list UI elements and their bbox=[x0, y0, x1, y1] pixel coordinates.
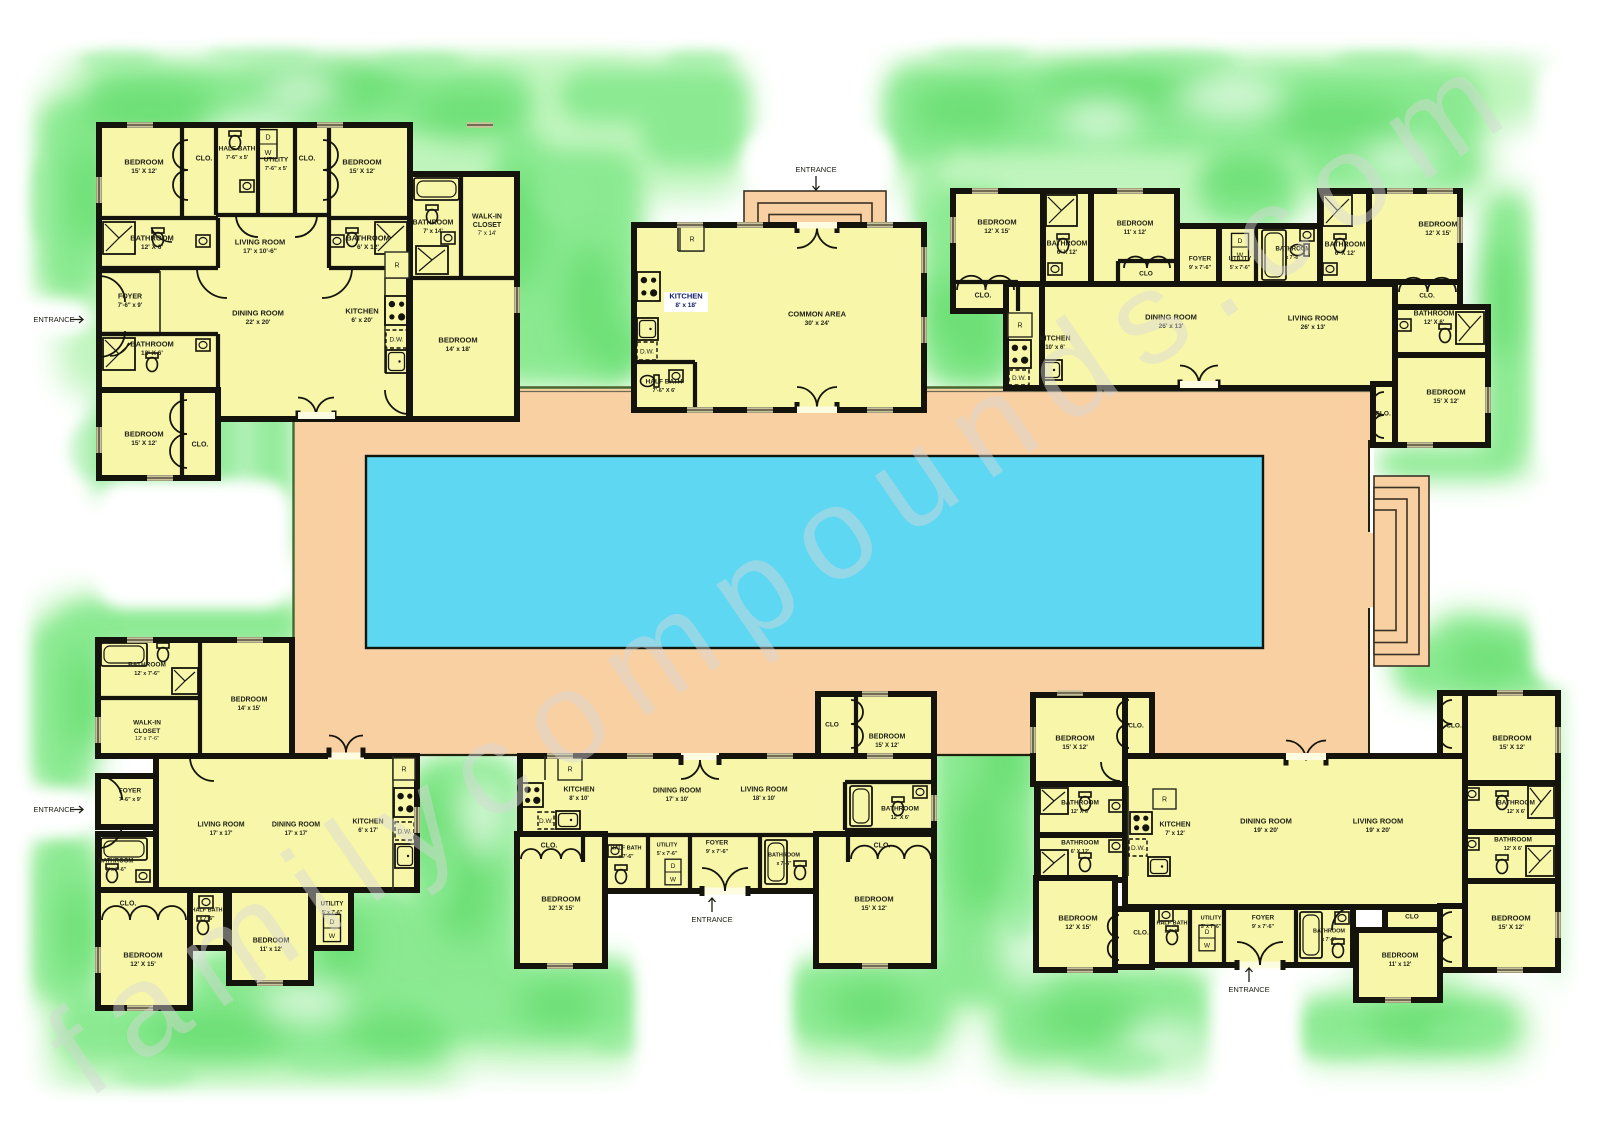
svg-text:BEDROOM: BEDROOM bbox=[124, 430, 163, 439]
svg-text:BEDROOM: BEDROOM bbox=[1491, 914, 1530, 923]
svg-text:x 7'-6": x 7'-6" bbox=[1322, 937, 1338, 943]
svg-text:6' X 12': 6' X 12' bbox=[357, 244, 379, 251]
svg-text:BEDROOM: BEDROOM bbox=[1426, 388, 1465, 397]
svg-text:12' X 6': 12' X 6' bbox=[141, 350, 163, 357]
svg-text:15' X 12': 15' X 12' bbox=[875, 743, 899, 749]
svg-text:D: D bbox=[1205, 929, 1210, 936]
svg-text:12' X 6': 12' X 6' bbox=[1507, 809, 1526, 815]
svg-text:DINING ROOM: DINING ROOM bbox=[232, 309, 284, 318]
svg-text:BATHROOM: BATHROOM bbox=[1414, 311, 1455, 318]
svg-text:BATHROOM: BATHROOM bbox=[130, 340, 174, 349]
svg-text:KITCHEN: KITCHEN bbox=[1159, 822, 1190, 829]
svg-text:15' X 12': 15' X 12' bbox=[861, 905, 887, 912]
svg-text:D: D bbox=[265, 133, 270, 142]
svg-text:22' x 20': 22' x 20' bbox=[246, 319, 271, 326]
svg-text:12' X 15': 12' X 15' bbox=[548, 905, 574, 912]
svg-text:12' X 6': 12' X 6' bbox=[891, 815, 910, 821]
svg-text:BEDROOM: BEDROOM bbox=[1117, 221, 1154, 228]
svg-text:15' X 12': 15' X 12' bbox=[131, 168, 157, 175]
svg-text:CLO.: CLO. bbox=[1375, 411, 1391, 418]
svg-text:R: R bbox=[689, 237, 694, 244]
svg-text:17' x 10'-6": 17' x 10'-6" bbox=[243, 248, 277, 255]
svg-text:30' x 24': 30' x 24' bbox=[805, 320, 830, 327]
svg-text:x 7'-6": x 7'-6" bbox=[777, 861, 793, 867]
svg-text:LIVING ROOM: LIVING ROOM bbox=[1353, 817, 1403, 826]
svg-text:BEDROOM: BEDROOM bbox=[1492, 734, 1531, 743]
svg-text:BATHROOM: BATHROOM bbox=[768, 853, 800, 859]
svg-text:COMMON AREA: COMMON AREA bbox=[788, 310, 847, 319]
svg-text:7'-6" x 5': 7'-6" x 5' bbox=[265, 166, 288, 172]
svg-text:LIVING ROOM: LIVING ROOM bbox=[197, 822, 244, 829]
svg-text:x 7'-6": x 7'-6" bbox=[1165, 929, 1181, 935]
svg-text:FOYER: FOYER bbox=[706, 840, 729, 847]
svg-text:D.W.: D.W. bbox=[1131, 845, 1145, 852]
svg-text:CLO: CLO bbox=[825, 722, 839, 729]
svg-text:R: R bbox=[1162, 797, 1167, 804]
svg-text:R: R bbox=[394, 263, 399, 270]
svg-text:DINING ROOM: DINING ROOM bbox=[653, 788, 701, 795]
svg-text:BEDROOM: BEDROOM bbox=[1058, 914, 1097, 923]
svg-text:KITCHEN: KITCHEN bbox=[345, 307, 378, 316]
svg-text:7' x 14': 7' x 14' bbox=[478, 231, 497, 237]
svg-text:WALK-IN: WALK-IN bbox=[472, 214, 502, 221]
svg-text:14' x 18': 14' x 18' bbox=[446, 346, 471, 353]
svg-text:LIVING ROOM: LIVING ROOM bbox=[1288, 314, 1338, 323]
svg-text:HALF BATH: HALF BATH bbox=[646, 379, 683, 386]
svg-text:18' x 10': 18' x 10' bbox=[753, 796, 776, 802]
svg-text:11' x 12': 11' x 12' bbox=[1389, 962, 1412, 968]
svg-text:12' X 6': 12' X 6' bbox=[141, 244, 163, 251]
svg-text:BATHROOM: BATHROOM bbox=[881, 806, 919, 813]
svg-text:17' x 17': 17' x 17' bbox=[210, 831, 233, 837]
svg-text:FOYER: FOYER bbox=[119, 788, 142, 795]
svg-text:BEDROOM: BEDROOM bbox=[977, 218, 1016, 227]
svg-text:9' x 7'-6": 9' x 7'-6" bbox=[1252, 924, 1275, 930]
svg-text:15' X 12': 15' X 12' bbox=[1433, 398, 1459, 405]
svg-text:9' x 7'-6": 9' x 7'-6" bbox=[706, 849, 729, 855]
svg-text:W: W bbox=[265, 148, 272, 157]
svg-text:BATHROOM: BATHROOM bbox=[130, 234, 174, 243]
svg-text:BATHROOM: BATHROOM bbox=[99, 859, 134, 865]
svg-text:UTILITY: UTILITY bbox=[657, 843, 678, 849]
svg-text:ENTRANCE: ENTRANCE bbox=[33, 315, 74, 324]
svg-text:CLO.: CLO. bbox=[299, 156, 316, 163]
svg-text:UTILITY: UTILITY bbox=[264, 157, 289, 164]
svg-text:ENTRANCE: ENTRANCE bbox=[1228, 985, 1269, 994]
svg-text:BEDROOM: BEDROOM bbox=[342, 158, 381, 167]
svg-text:12' X 15': 12' X 15' bbox=[1065, 924, 1091, 931]
svg-text:BATHROOM: BATHROOM bbox=[1047, 241, 1088, 248]
svg-text:BATHROOM: BATHROOM bbox=[1313, 929, 1345, 935]
svg-text:14' x 15': 14' x 15' bbox=[238, 706, 261, 712]
svg-text:8' x 7'-6": 8' x 7'-6" bbox=[106, 867, 127, 873]
svg-text:BEDROOM: BEDROOM bbox=[231, 697, 268, 704]
svg-text:FOYER: FOYER bbox=[1252, 915, 1275, 922]
svg-text:7'-6" X 6': 7'-6" X 6' bbox=[653, 388, 677, 394]
svg-text:CLO.: CLO. bbox=[541, 843, 558, 850]
svg-text:15' X 12': 15' X 12' bbox=[349, 168, 375, 175]
svg-text:HALF BATH: HALF BATH bbox=[219, 146, 256, 153]
svg-text:ENTRANCE: ENTRANCE bbox=[33, 805, 74, 814]
svg-text:WALK-IN: WALK-IN bbox=[133, 720, 161, 727]
svg-text:15' X 12': 15' X 12' bbox=[1498, 924, 1524, 931]
svg-text:BATHROOM: BATHROOM bbox=[413, 220, 454, 227]
svg-text:15' X 12': 15' X 12' bbox=[131, 440, 157, 447]
svg-text:12' X 15': 12' X 15' bbox=[1425, 230, 1451, 237]
svg-text:UTILITY: UTILITY bbox=[1201, 916, 1222, 922]
svg-text:BEDROOM: BEDROOM bbox=[124, 158, 163, 167]
svg-text:5' x 7'-6": 5' x 7'-6" bbox=[1201, 924, 1222, 930]
svg-text:CLO.: CLO. bbox=[975, 293, 992, 300]
svg-text:6' x 20': 6' x 20' bbox=[351, 317, 373, 324]
svg-text:BEDROOM: BEDROOM bbox=[854, 895, 893, 904]
svg-text:12' X 15': 12' X 15' bbox=[984, 228, 1010, 235]
svg-text:CLO.: CLO. bbox=[1446, 723, 1462, 730]
svg-text:ENTRANCE: ENTRANCE bbox=[795, 165, 836, 174]
svg-text:D.W.: D.W. bbox=[389, 337, 403, 344]
svg-text:15' X 12': 15' X 12' bbox=[1499, 744, 1525, 751]
svg-text:HALF BATH: HALF BATH bbox=[1156, 921, 1187, 927]
svg-text:7'-6" x 9': 7'-6" x 9' bbox=[118, 303, 143, 309]
svg-text:CLO.: CLO. bbox=[1419, 293, 1435, 300]
svg-text:17' x 10': 17' x 10' bbox=[666, 797, 689, 803]
svg-text:12' X 6': 12' X 6' bbox=[1504, 846, 1523, 852]
svg-text:15' X 12': 15' X 12' bbox=[1062, 744, 1088, 751]
svg-text:6' X 12': 6' X 12' bbox=[1071, 849, 1090, 855]
svg-text:7' x 12': 7' x 12' bbox=[1165, 831, 1185, 837]
svg-text:BEDROOM: BEDROOM bbox=[1055, 734, 1094, 743]
svg-text:BEDROOM: BEDROOM bbox=[541, 895, 580, 904]
svg-text:BATHROOM: BATHROOM bbox=[1061, 840, 1099, 847]
svg-text:LIVING ROOM: LIVING ROOM bbox=[235, 238, 285, 247]
svg-text:19' x 20': 19' x 20' bbox=[1254, 827, 1279, 834]
svg-text:12' X 6': 12' X 6' bbox=[1071, 809, 1090, 815]
svg-text:KITCHEN: KITCHEN bbox=[669, 292, 702, 301]
svg-text:7'-6" x 5': 7'-6" x 5' bbox=[226, 155, 249, 161]
svg-text:HALF BATH: HALF BATH bbox=[610, 846, 641, 852]
svg-text:LIVING ROOM: LIVING ROOM bbox=[740, 787, 787, 794]
svg-text:CLO.: CLO. bbox=[874, 843, 891, 850]
svg-text:BEDROOM: BEDROOM bbox=[1382, 953, 1419, 960]
svg-text:DINING ROOM: DINING ROOM bbox=[1240, 817, 1292, 826]
svg-text:W: W bbox=[670, 877, 677, 884]
svg-text:CLOSET: CLOSET bbox=[134, 728, 160, 735]
svg-text:BATHROOM: BATHROOM bbox=[128, 662, 166, 669]
svg-text:CLO.: CLO. bbox=[1128, 723, 1144, 730]
svg-text:CLO: CLO bbox=[1405, 914, 1419, 921]
svg-text:BATHROOM: BATHROOM bbox=[1494, 837, 1532, 844]
svg-text:BATHROOM: BATHROOM bbox=[1061, 800, 1099, 807]
svg-text:D: D bbox=[671, 863, 676, 870]
svg-text:ENTRANCE: ENTRANCE bbox=[691, 915, 732, 924]
svg-text:12' x 7'-6": 12' x 7'-6" bbox=[135, 736, 159, 742]
svg-text:8' x 18': 8' x 18' bbox=[675, 302, 697, 309]
svg-text:CLO.: CLO. bbox=[120, 901, 137, 908]
svg-text:CLO.: CLO. bbox=[192, 442, 209, 449]
svg-text:5' x 7'-6": 5' x 7'-6" bbox=[657, 851, 678, 857]
svg-text:BEDROOM: BEDROOM bbox=[869, 734, 906, 741]
svg-text:6' X 12': 6' X 12' bbox=[1057, 250, 1078, 256]
svg-text:7' x 14': 7' x 14' bbox=[423, 229, 443, 235]
svg-text:BEDROOM: BEDROOM bbox=[1418, 220, 1457, 229]
svg-text:BEDROOM: BEDROOM bbox=[438, 336, 477, 345]
svg-text:12' x 7'-6": 12' x 7'-6" bbox=[134, 671, 160, 677]
svg-text:FOYER: FOYER bbox=[118, 294, 142, 301]
svg-text:BATHROOM: BATHROOM bbox=[1497, 800, 1535, 807]
svg-text:BATHROOM: BATHROOM bbox=[346, 234, 390, 243]
svg-text:CLO.: CLO. bbox=[1133, 930, 1149, 937]
svg-text:12' X 6': 12' X 6' bbox=[1424, 320, 1445, 326]
svg-text:19' x 20': 19' x 20' bbox=[1366, 827, 1391, 834]
svg-text:26' x 13': 26' x 13' bbox=[1301, 324, 1326, 331]
svg-text:W: W bbox=[1204, 943, 1211, 950]
svg-text:D.W.: D.W. bbox=[640, 349, 654, 356]
svg-text:CLO.: CLO. bbox=[196, 156, 213, 163]
svg-text:x 7'-6": x 7'-6" bbox=[619, 854, 635, 860]
svg-text:CLOSET: CLOSET bbox=[473, 222, 502, 229]
